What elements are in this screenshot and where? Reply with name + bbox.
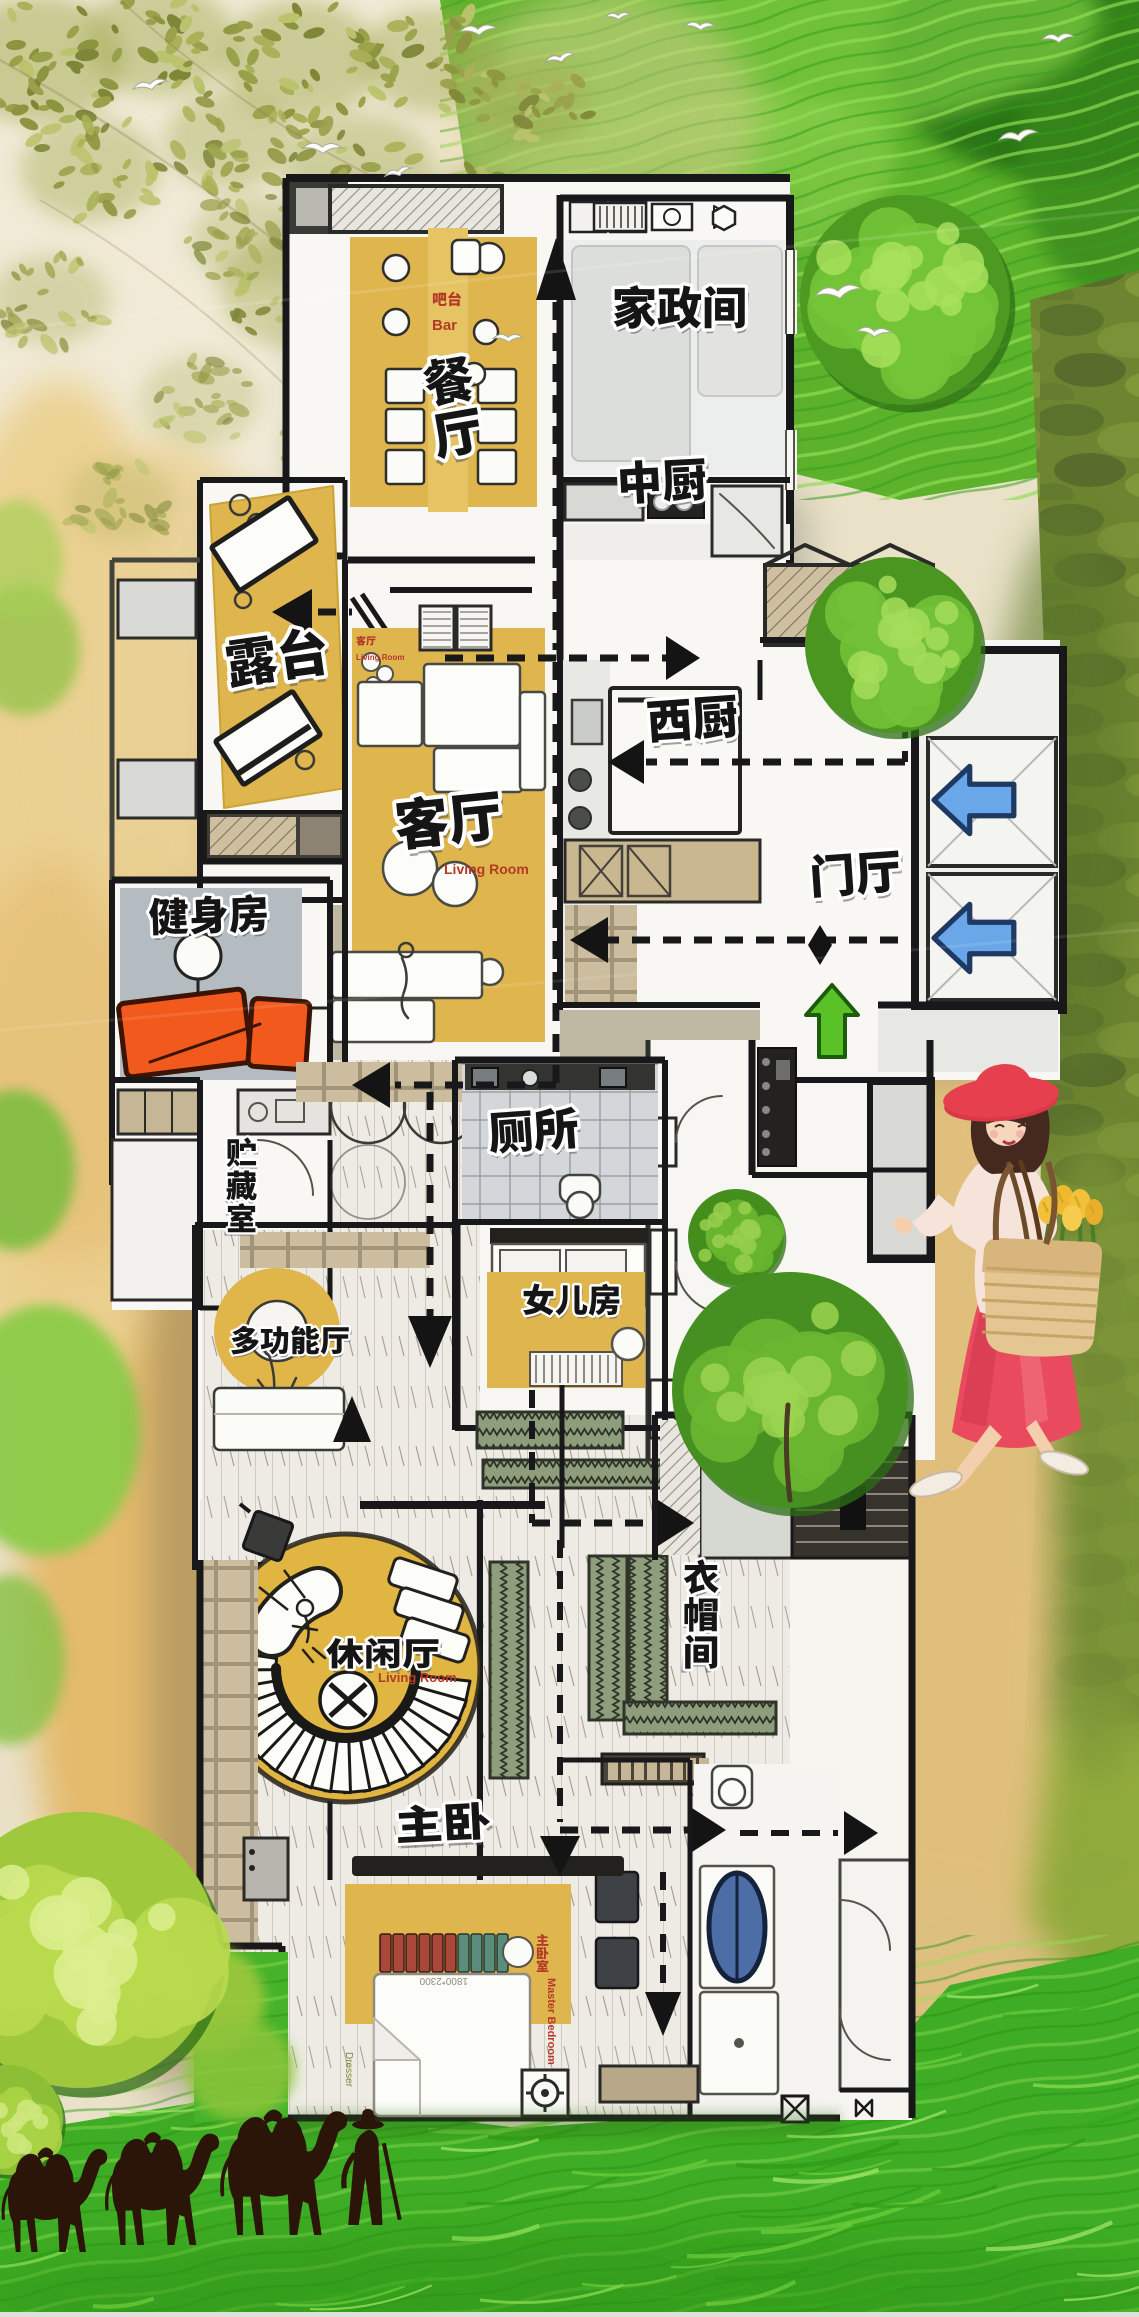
svg-text:Bar: Bar [432,317,457,334]
svg-text:Living Room: Living Room [444,861,529,877]
svg-text:1800*2300: 1800*2300 [419,1975,468,1986]
svg-text:Dresser: Dresser [343,2052,354,2088]
svg-text:Master Bedroom: Master Bedroom [545,1978,557,2065]
svg-text:Living Room: Living Room [356,653,404,662]
svg-text:Living Room: Living Room [378,1670,457,1685]
